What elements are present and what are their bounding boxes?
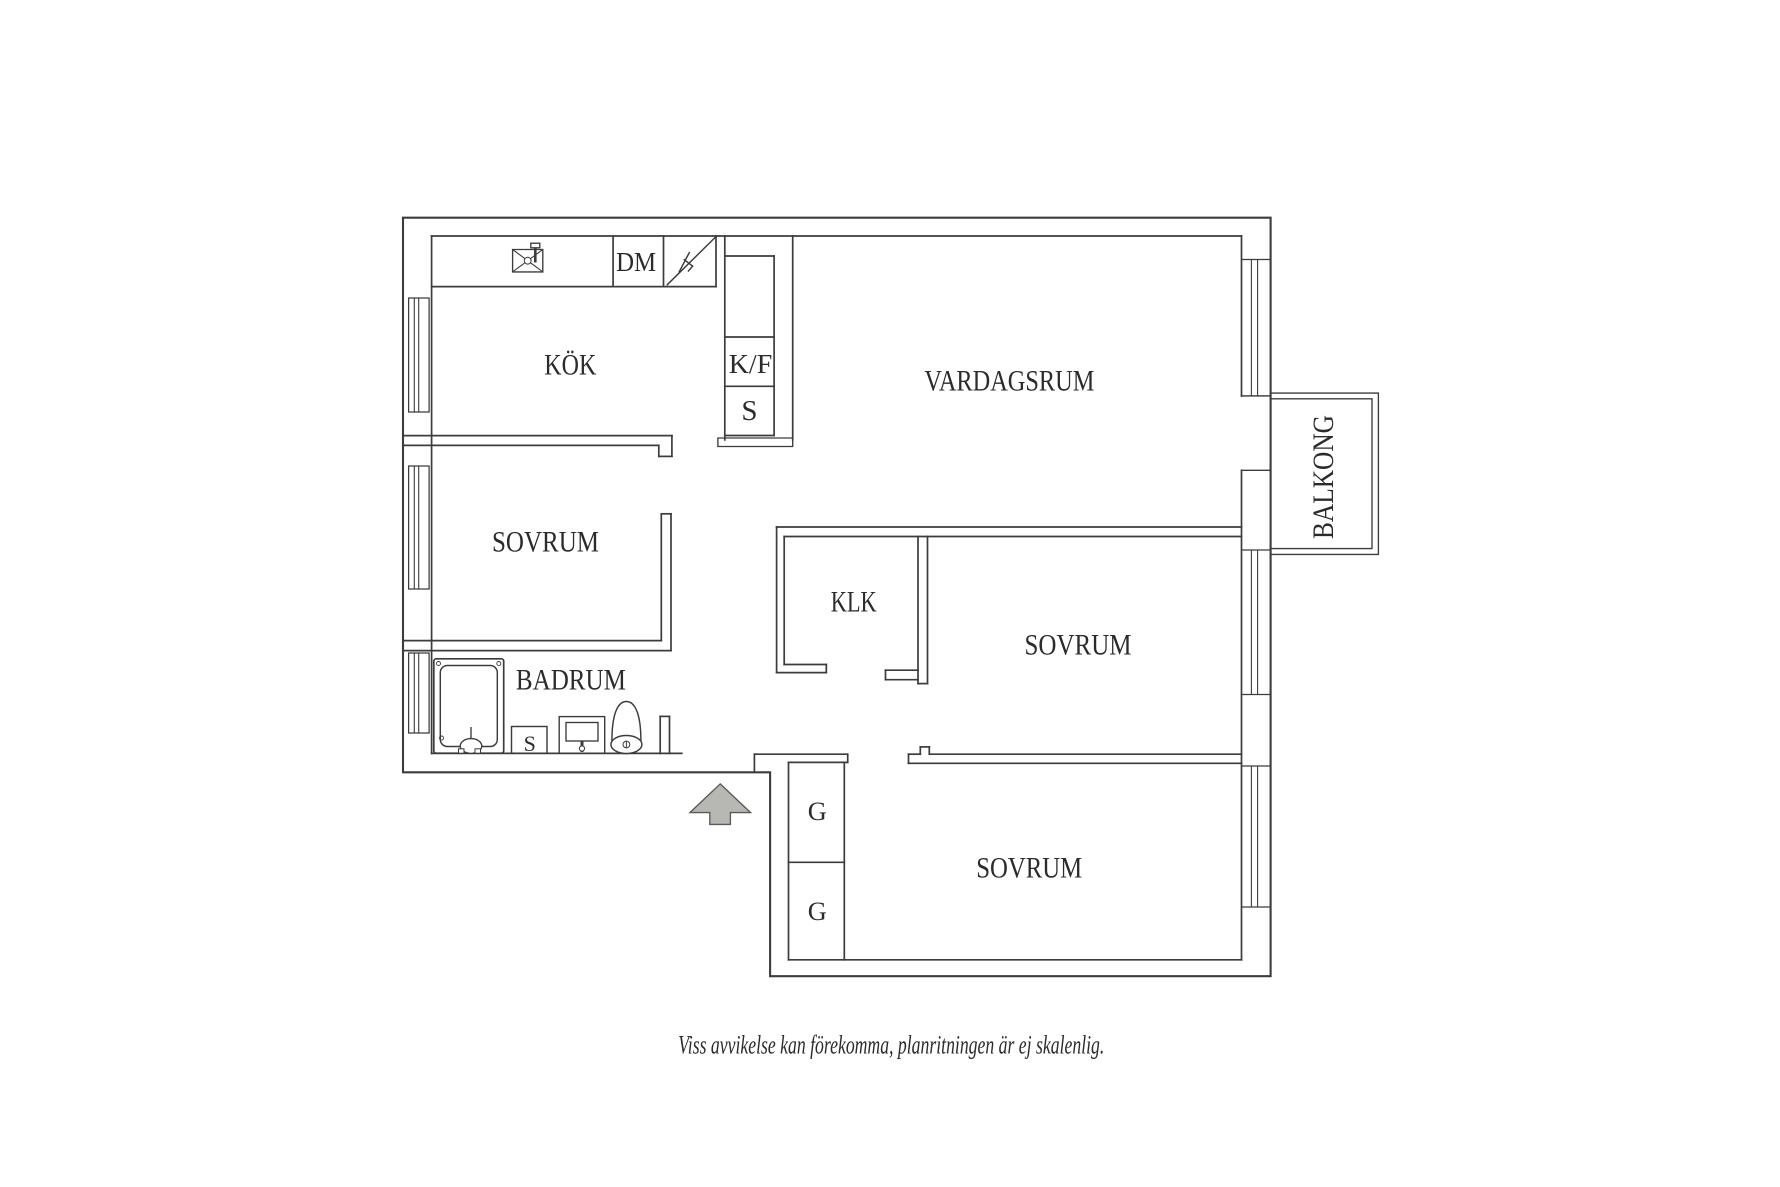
svg-text:KLK: KLK: [831, 585, 877, 618]
svg-text:SOVRUM: SOVRUM: [492, 525, 599, 558]
svg-text:Viss avvikelse kan förekomma,: Viss avvikelse kan förekomma, planritnin…: [678, 1031, 1104, 1060]
svg-text:G: G: [808, 797, 827, 826]
svg-text:DM: DM: [616, 247, 656, 277]
svg-text:VARDAGSRUM: VARDAGSRUM: [924, 364, 1094, 397]
svg-text:SOVRUM: SOVRUM: [1025, 629, 1132, 662]
svg-text:KÖK: KÖK: [544, 349, 596, 382]
svg-text:G: G: [808, 897, 827, 926]
svg-text:SOVRUM: SOVRUM: [976, 852, 1082, 885]
svg-text:BADRUM: BADRUM: [516, 664, 626, 697]
svg-text:S: S: [524, 731, 536, 756]
svg-text:BALKONG: BALKONG: [1307, 415, 1340, 539]
svg-text:S: S: [741, 395, 757, 427]
svg-text:K/F: K/F: [729, 349, 773, 379]
